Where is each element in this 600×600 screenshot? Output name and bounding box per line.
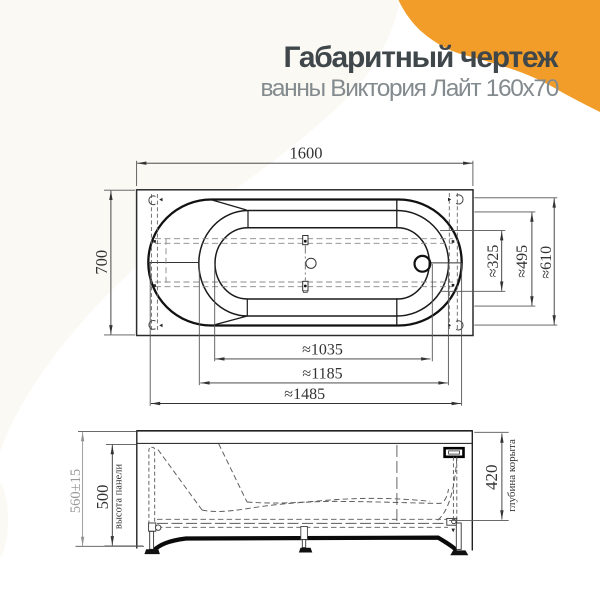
svg-text:высота панели: высота панели (113, 464, 124, 530)
svg-text:700: 700 (92, 250, 111, 275)
svg-text:≈495: ≈495 (514, 245, 531, 278)
svg-text:≈1035: ≈1035 (302, 341, 343, 358)
svg-text:≈1185: ≈1185 (302, 365, 342, 382)
svg-text:≈1485: ≈1485 (284, 386, 325, 403)
svg-text:420: 420 (482, 465, 501, 491)
svg-text:500: 500 (93, 485, 112, 510)
svg-text:≈610: ≈610 (538, 246, 555, 279)
svg-text:≈325: ≈325 (485, 245, 502, 278)
svg-text:ванны Виктория Лайт 160х70: ванны Виктория Лайт 160х70 (260, 75, 558, 102)
svg-text:Габаритный чертеж: Габаритный чертеж (283, 41, 559, 74)
svg-text:560±15: 560±15 (68, 469, 84, 513)
svg-text:1600: 1600 (290, 144, 323, 163)
svg-text:глубина корыта: глубина корыта (506, 439, 518, 512)
